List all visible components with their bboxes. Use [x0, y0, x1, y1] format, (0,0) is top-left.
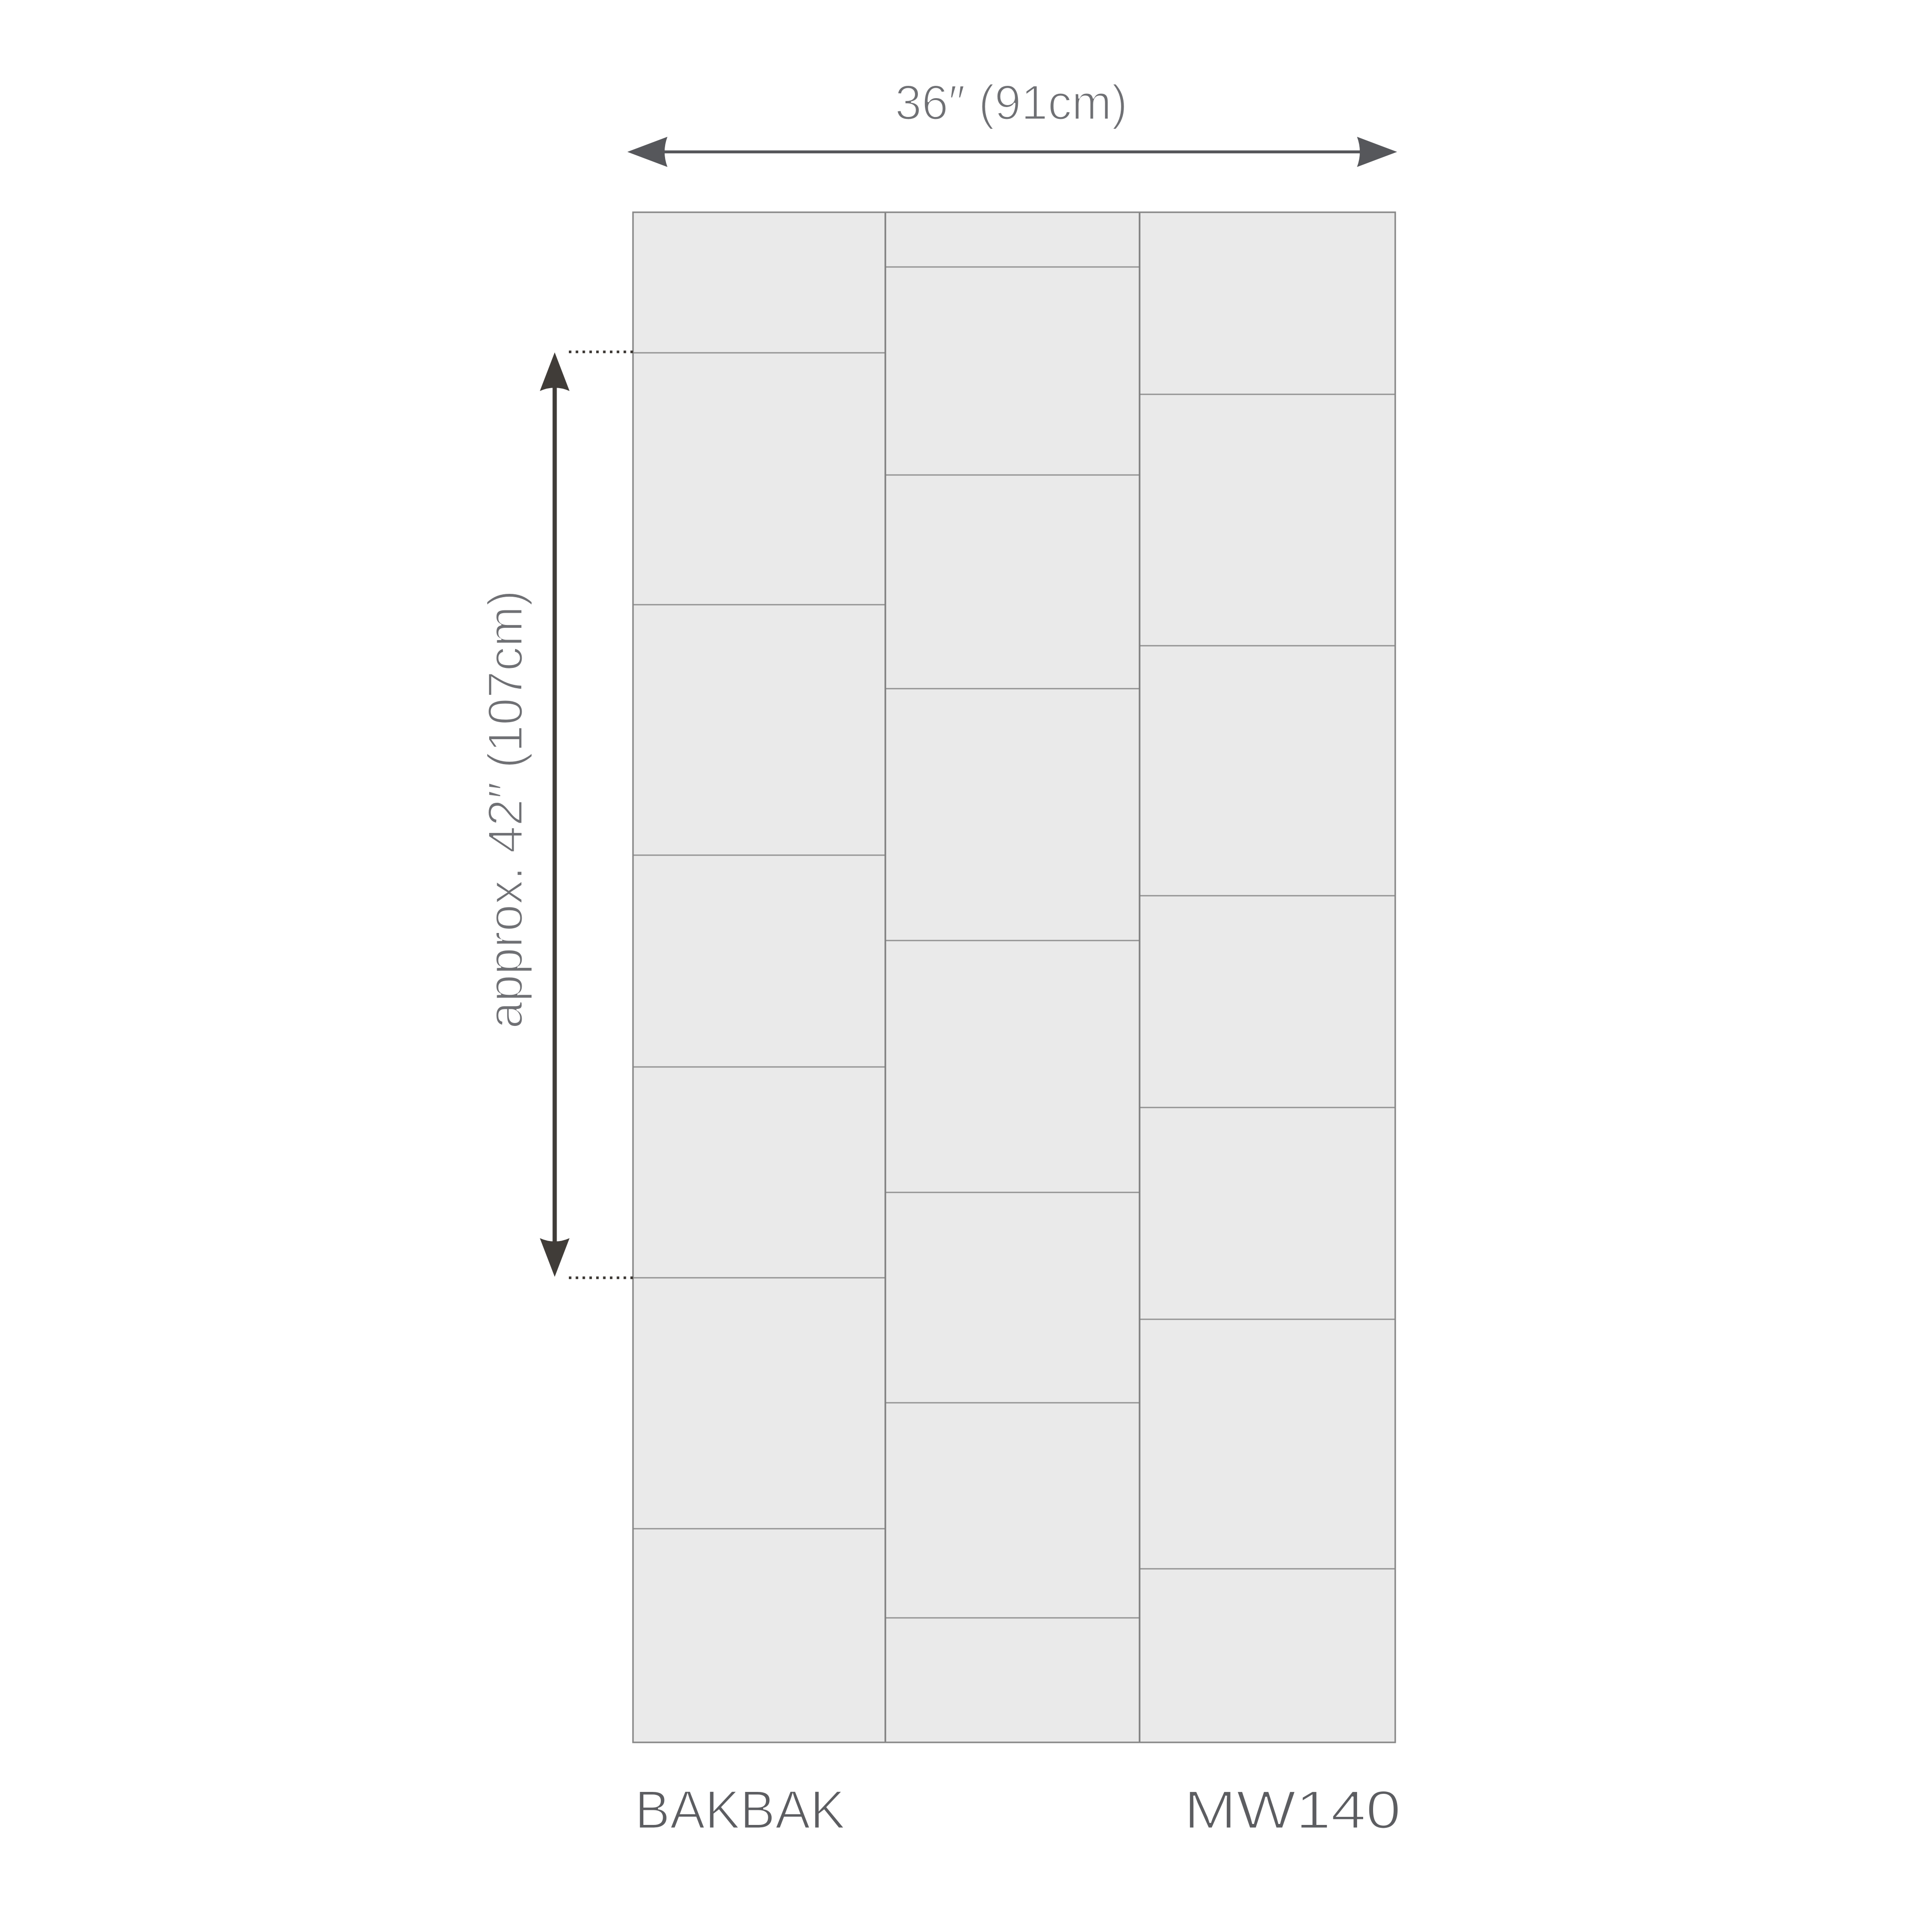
svg-text:36″ (91cm): 36″ (91cm): [895, 75, 1128, 130]
svg-text:approx. 42″ (107cm): approx. 42″ (107cm): [478, 590, 533, 1029]
svg-text:BAKBAK: BAKBAK: [635, 1780, 845, 1840]
svg-text:MW140: MW140: [1184, 1780, 1401, 1840]
